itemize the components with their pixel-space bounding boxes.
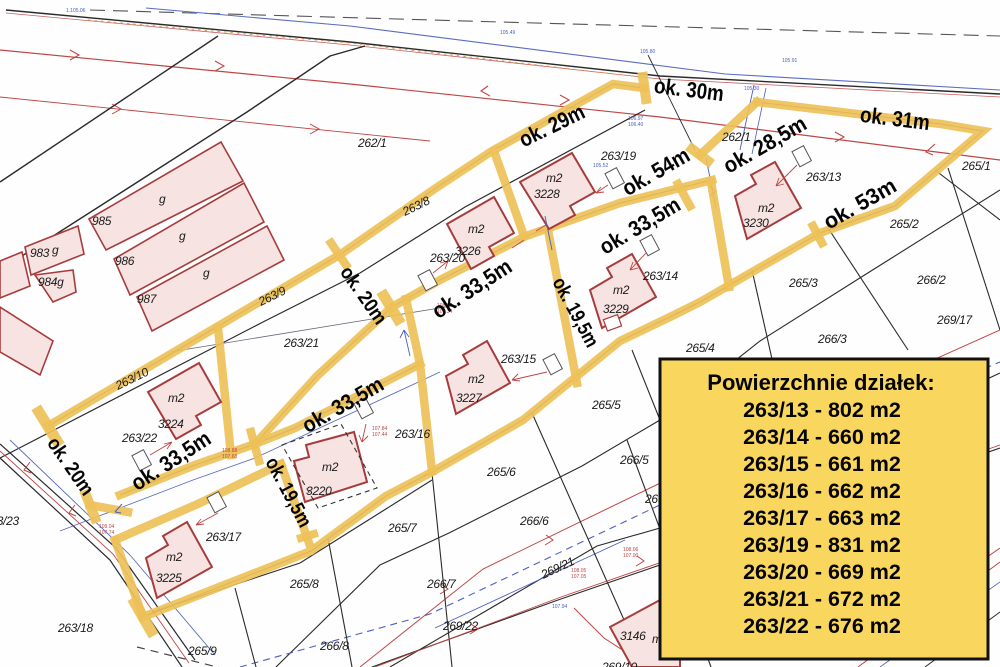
svg-text:m2: m2: [468, 372, 485, 386]
svg-text:983: 983: [30, 246, 50, 260]
svg-text:106.40: 106.40: [628, 122, 644, 128]
svg-text:m2: m2: [546, 171, 563, 185]
svg-text:266/8: 266/8: [319, 639, 349, 653]
svg-text:263/19: 263/19: [600, 149, 637, 163]
svg-text:107.74: 107.74: [99, 530, 115, 536]
svg-text:g: g: [203, 266, 210, 280]
svg-text:107.05: 107.05: [571, 574, 587, 580]
svg-text:266/7: 266/7: [426, 577, 457, 591]
svg-text:3229: 3229: [603, 302, 629, 316]
svg-text:263/16 - 662 m2: 263/16 - 662 m2: [743, 479, 901, 503]
svg-text:265/4: 265/4: [685, 341, 715, 355]
svg-text:g: g: [52, 243, 59, 257]
svg-text:269/10: 269/10: [601, 660, 638, 667]
svg-text:266/5: 266/5: [619, 453, 649, 467]
svg-text:263/13: 263/13: [805, 170, 842, 184]
svg-text:3220: 3220: [306, 484, 332, 498]
svg-text:Powierzchnie działek:: Powierzchnie działek:: [707, 370, 934, 395]
svg-text:263/21 - 672 m2: 263/21 - 672 m2: [743, 587, 901, 611]
svg-text:107.68: 107.68: [222, 454, 238, 460]
svg-text:263/17 - 663 m2: 263/17 - 663 m2: [743, 506, 901, 530]
svg-text:105.91: 105.91: [782, 58, 798, 64]
svg-text:105.30: 105.30: [744, 86, 760, 92]
svg-text:263/20 - 669 m2: 263/20 - 669 m2: [743, 560, 901, 584]
svg-text:265/6: 265/6: [486, 465, 516, 479]
svg-text:263/22 - 676 m2: 263/22 - 676 m2: [743, 614, 901, 638]
svg-text:263/14: 263/14: [642, 269, 679, 283]
svg-text:266/6: 266/6: [519, 514, 549, 528]
svg-text:263/14 - 660 m2: 263/14 - 660 m2: [743, 425, 901, 449]
svg-text:107.44: 107.44: [372, 432, 388, 438]
svg-text:g: g: [159, 192, 166, 206]
svg-text:265/2: 265/2: [889, 217, 919, 231]
svg-text:986: 986: [115, 254, 135, 268]
svg-text:262/1: 262/1: [357, 136, 387, 150]
svg-text:269/17: 269/17: [936, 313, 974, 327]
svg-text:m2: m2: [613, 283, 630, 297]
svg-text:m2: m2: [322, 460, 339, 474]
svg-text:263/15: 263/15: [500, 352, 537, 366]
svg-text:107.00: 107.00: [623, 553, 639, 559]
svg-text:105.52: 105.52: [593, 163, 609, 169]
svg-text:105.49: 105.49: [500, 30, 516, 36]
svg-text:985: 985: [92, 214, 112, 228]
svg-text:m2: m2: [168, 391, 185, 405]
svg-text:265/8: 265/8: [289, 577, 319, 591]
svg-text:263/15 - 661 m2: 263/15 - 661 m2: [743, 452, 901, 476]
svg-text:263/13 - 802 m2: 263/13 - 802 m2: [743, 398, 901, 422]
svg-text:263/22: 263/22: [121, 431, 158, 445]
svg-text:g: g: [179, 229, 186, 243]
svg-text:265/7: 265/7: [387, 521, 418, 535]
svg-text:m2: m2: [166, 550, 183, 564]
svg-text:1.105.06: 1.105.06: [66, 8, 86, 14]
svg-text:266/3: 266/3: [817, 332, 847, 346]
svg-text:263/18: 263/18: [57, 621, 94, 635]
svg-text:263/16: 263/16: [394, 427, 431, 441]
svg-text:3226: 3226: [455, 244, 481, 258]
svg-text:m2: m2: [758, 201, 775, 215]
svg-text:266/2: 266/2: [916, 273, 946, 287]
svg-text:3230: 3230: [743, 216, 769, 230]
svg-text:263/23: 263/23: [0, 514, 20, 528]
svg-text:3225: 3225: [156, 571, 182, 585]
svg-text:m2: m2: [468, 222, 485, 236]
svg-text:3227: 3227: [456, 391, 483, 405]
svg-text:3146: 3146: [620, 629, 646, 643]
svg-text:263/19 - 831 m2: 263/19 - 831 m2: [743, 533, 901, 557]
svg-text:263/21: 263/21: [283, 336, 319, 350]
svg-text:107.94: 107.94: [552, 604, 568, 610]
svg-text:265/1: 265/1: [961, 159, 991, 173]
svg-text:269/22: 269/22: [442, 619, 479, 633]
svg-text:263/17: 263/17: [205, 530, 243, 544]
svg-text:105.80: 105.80: [640, 49, 656, 55]
svg-text:3228: 3228: [534, 187, 560, 201]
svg-text:265/3: 265/3: [788, 276, 818, 290]
svg-text:987: 987: [137, 292, 158, 306]
svg-text:265/9: 265/9: [187, 644, 217, 658]
svg-text:3224: 3224: [158, 417, 184, 431]
svg-text:265/5: 265/5: [591, 398, 621, 412]
svg-text:984g: 984g: [38, 275, 64, 289]
